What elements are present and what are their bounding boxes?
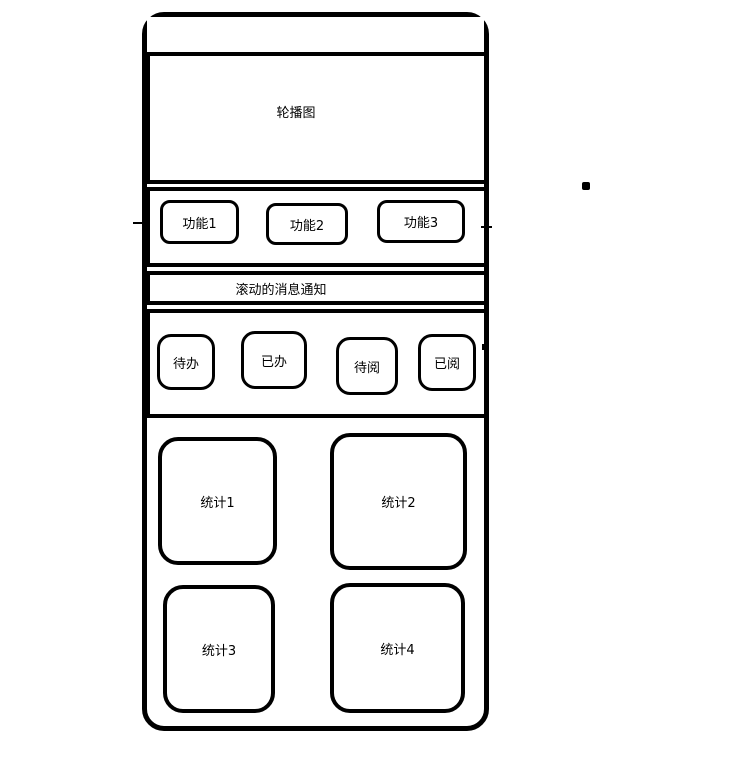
stat-card-4[interactable]: 统计4 [330, 583, 465, 713]
function-button-3[interactable]: 功能3 [377, 200, 465, 243]
function-button-1[interactable]: 功能1 [160, 200, 239, 244]
done-button[interactable]: 已办 [241, 331, 307, 389]
notification-ticker-label: 滚动的消息通知 [226, 283, 336, 299]
todo-button[interactable]: 待办 [157, 334, 215, 390]
stat-card-1[interactable]: 统计1 [158, 437, 277, 565]
wireframe-canvas: 轮播图 功能1 功能2 功能3 滚动的消息通知 待办 已办 待阅 已阅 统计1 … [0, 0, 739, 768]
stat-card-3[interactable]: 统计3 [163, 585, 275, 713]
stray-dot [582, 182, 590, 190]
carousel-label: 轮播图 [240, 105, 352, 123]
read-button[interactable]: 已阅 [418, 334, 476, 391]
function-button-2[interactable]: 功能2 [266, 203, 348, 245]
artifact-tick-left-lower [143, 344, 150, 349]
artifact-tick-right-lower [482, 344, 488, 350]
to-read-button[interactable]: 待阅 [336, 337, 398, 395]
top-bar [147, 17, 484, 52]
artifact-tick-right-upper [481, 226, 492, 228]
stat-card-2[interactable]: 统计2 [330, 433, 467, 570]
artifact-tick-left-upper [133, 222, 142, 224]
